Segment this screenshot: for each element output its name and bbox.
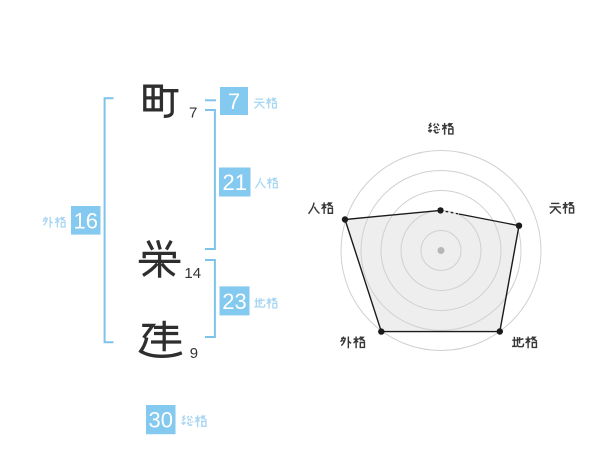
svg-text:21: 21 xyxy=(222,170,246,195)
svg-text:14: 14 xyxy=(184,265,201,282)
svg-text:30: 30 xyxy=(148,408,172,433)
svg-text:7: 7 xyxy=(189,105,197,122)
svg-text:9: 9 xyxy=(190,345,198,362)
svg-text:16: 16 xyxy=(73,208,97,233)
svg-text:23: 23 xyxy=(222,289,246,314)
svg-text:7: 7 xyxy=(228,89,240,114)
